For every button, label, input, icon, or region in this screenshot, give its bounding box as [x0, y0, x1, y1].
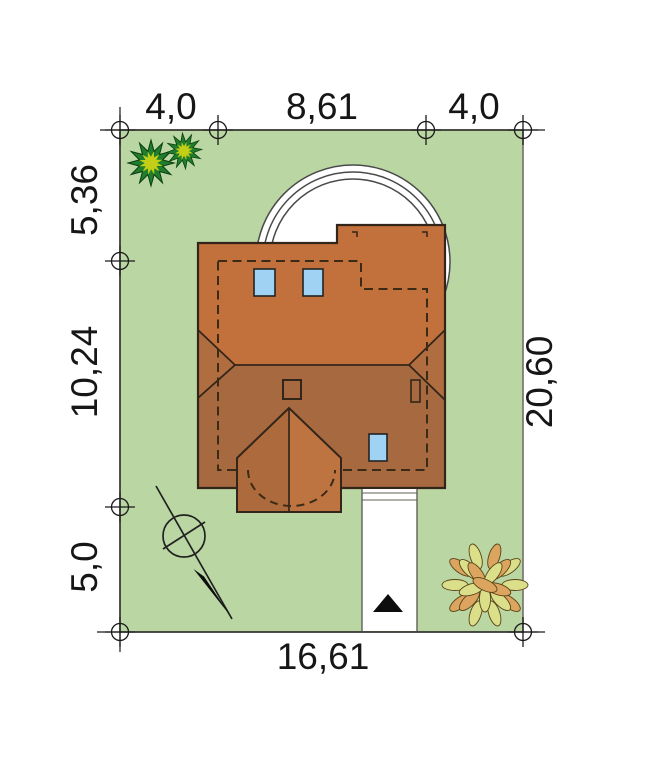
- skylight-2: [303, 269, 323, 296]
- dim-label-bottom: 16,61: [277, 636, 370, 677]
- dim-label-left-middle: 10,24: [64, 326, 105, 419]
- dim-label-left-lower: 5,0: [64, 541, 105, 592]
- dim-label-right: 20,60: [519, 336, 560, 429]
- site-plan-page: 4,0 8,61 4,0 5,36 10,24 5,0 20,60 16,61: [0, 0, 650, 768]
- dim-label-top-center: 8,61: [286, 86, 358, 127]
- house-roof-plan: [198, 225, 445, 512]
- driveway: [362, 489, 417, 631]
- skylight-1: [254, 269, 275, 296]
- dim-label-top-left: 4,0: [145, 86, 196, 127]
- site-plan-canvas: 4,0 8,61 4,0 5,36 10,24 5,0 20,60 16,61: [0, 0, 650, 768]
- skylight-3: [369, 434, 387, 461]
- dim-label-top-right: 4,0: [448, 86, 499, 127]
- dim-label-left-upper: 5,36: [64, 164, 105, 236]
